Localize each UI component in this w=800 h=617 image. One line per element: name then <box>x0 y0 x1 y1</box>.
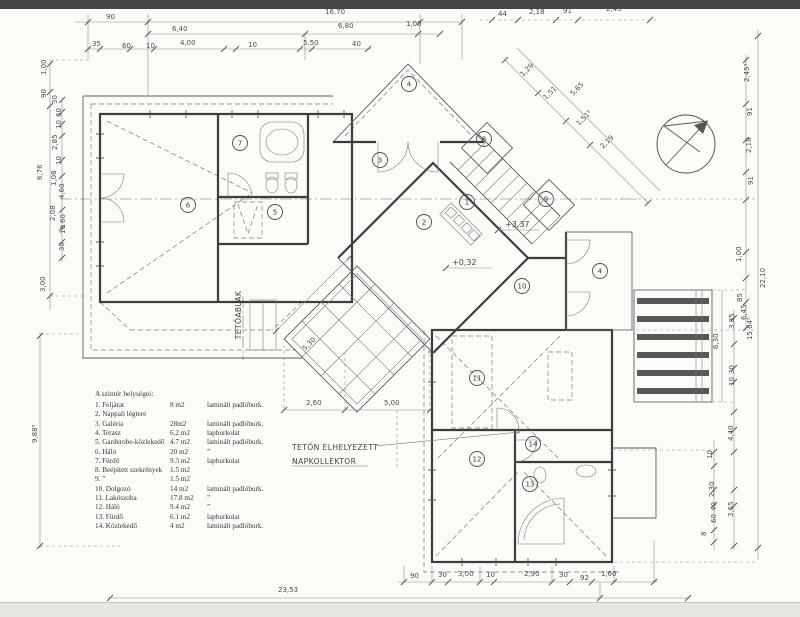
sink <box>576 465 596 477</box>
dim-label: 90 <box>410 572 419 580</box>
room-number-label: 9 <box>544 196 548 204</box>
legend-row: 2. Nappali légtere <box>95 410 146 418</box>
dim-label: 9,88⁵ <box>31 424 39 443</box>
legend-room-area: 6.2 m2 <box>170 429 190 437</box>
room-number-label: 7 <box>238 140 242 148</box>
legend-row: 5. Garderobe-közlekedő 4.7 m2 laminált p… <box>95 438 263 446</box>
dim-label: 90 <box>40 89 48 98</box>
dim-label: 5,65 <box>569 81 586 98</box>
legend: A szintér helységei: 1. Feljárat 8 m2 la… <box>95 389 263 530</box>
legend-room-floor: laminált padlóburk. <box>207 401 263 409</box>
dim-label: 2,85 <box>51 134 59 150</box>
dim-label: 40 <box>710 502 718 511</box>
dim-label: 2,19 <box>599 134 616 151</box>
dim-label: 10 <box>146 42 155 50</box>
floor-plan-drawing: 90 16,70 6,40 6,80 1,00 35 60 10 4,00 10… <box>0 0 800 616</box>
dim-label: 3,65 <box>727 501 735 517</box>
dim-label: 3,00 <box>458 570 474 578</box>
level-mark-upper: +3,37 <box>505 220 530 229</box>
right-wing-outer-wall <box>432 330 612 562</box>
dim-label: 2,18 <box>745 137 753 153</box>
legend-room-floor: lapburkolat <box>207 457 240 465</box>
room-number-label: 5 <box>273 209 277 217</box>
dim-label: 4,60 <box>58 183 66 199</box>
legend-room-name: 7. Fürdő <box>95 457 120 465</box>
legend-room-name: 8. Beépített szekrények <box>95 466 163 474</box>
dim-label: 2,45⁵ <box>743 63 751 82</box>
dim-label: 10 <box>728 377 736 386</box>
dim-label: 2,08 <box>49 205 57 221</box>
dim-label: 1,51⁵ <box>575 109 594 128</box>
level-mark-entry: +0,32 <box>452 258 477 267</box>
legend-room-area: 8 m2 <box>170 401 185 409</box>
room-circle-7: 7 <box>233 136 248 151</box>
dim-label: 22,10 <box>759 268 767 288</box>
scanned-floor-plan-page: 90 16,70 6,40 6,80 1,00 35 60 10 4,00 10… <box>0 0 800 616</box>
dim-label: 6,30 <box>712 333 720 349</box>
legend-room-area: 4.7 m2 <box>170 438 190 446</box>
dim-label: 1,00 <box>406 20 422 28</box>
dim-label: 2,90 <box>524 570 540 578</box>
dim-label: 30 <box>728 365 736 374</box>
legend-row: 8. Beépített szekrények 1.5 m2 <box>95 466 190 474</box>
room-number-label: 1 <box>465 199 469 207</box>
dim-label: 60 <box>122 42 131 50</box>
legend-room-area: 14 m2 <box>170 485 189 493</box>
legend-room-area: 1.5 m2 <box>170 475 190 483</box>
legend-row: 3. Galéria 28m2 laminált padlóburk. <box>95 420 263 428</box>
dim-label: 91 <box>747 176 755 185</box>
room-number-label: 11 <box>473 375 482 383</box>
room-number-label: 4 <box>407 81 412 89</box>
compass-icon <box>657 115 715 173</box>
legend-room-floor: lapburkolat <box>207 429 240 437</box>
legend-room-floor: laminált padlóburk. <box>207 485 263 493</box>
dim-label: 10 <box>59 225 67 234</box>
room-circle-12: 12 <box>470 452 485 467</box>
legend-row: 11. Lakószoba 17.8 m2 ” <box>95 494 210 502</box>
corner-bathtub <box>518 498 564 544</box>
dim-label: 91 <box>746 107 754 116</box>
room-number-label: 14 <box>529 441 538 449</box>
roof-outlines <box>60 70 640 572</box>
dim-label: 30 <box>559 571 568 579</box>
legend-room-name: 1. Feljárat <box>95 401 124 409</box>
room-circle-3: 3 <box>373 153 388 168</box>
legend-room-name: 5. Garderobe-közlekedő <box>95 438 165 446</box>
dim-label: 10 <box>248 41 257 49</box>
toilet <box>266 177 278 193</box>
dim-label: 6,40 <box>172 25 188 33</box>
legend-room-name: 13. Fürdő <box>95 513 123 521</box>
room-circle-6: 6 <box>181 198 196 213</box>
dim-label: 8 <box>700 532 708 536</box>
dim-label: 6,76 <box>36 164 44 180</box>
legend-room-name: 14. Közlekedő <box>95 522 137 530</box>
legend-row: 10. Dolgozó 14 m2 laminált padlóburk. <box>95 485 263 493</box>
solar-collector <box>634 290 712 402</box>
legend-row: 6. Háló 20 m2 ” <box>95 448 210 456</box>
room-circle-4b: 4 <box>593 264 608 279</box>
dim-label: 5,00 <box>384 399 400 407</box>
room-circle-2: 2 <box>417 215 432 230</box>
legend-room-name: 10. Dolgozó <box>95 485 131 493</box>
legend-room-floor: laminált padlóburk. <box>207 438 263 446</box>
room-circle-5: 5 <box>268 205 283 220</box>
room-number-label: 13 <box>526 481 535 489</box>
room-circle-11: 11 <box>470 371 485 386</box>
entry-steps <box>440 203 482 245</box>
dim-label: 2,45⁵ <box>606 5 625 13</box>
legend-room-name: 9. ” <box>95 475 105 483</box>
dim-label: 2,60 <box>306 399 322 407</box>
dim-label: 85 <box>736 293 744 302</box>
legend-room-floor: laminált padlóburk. <box>207 420 263 428</box>
toilet-2 <box>534 467 546 483</box>
room-circle-4a: 4 <box>402 77 417 92</box>
room-number-label: 3 <box>378 157 382 165</box>
legend-room-name: 4. Terasz <box>95 429 121 437</box>
dim-label: 2,18 <box>529 8 545 16</box>
bidet <box>285 177 297 193</box>
legend-row: 13. Fürdő 6.1 m2 lapburkolat <box>95 513 240 521</box>
dim-label: 23,53 <box>278 586 298 594</box>
legend-room-floor: ” <box>207 494 210 502</box>
wardrobe-room5 <box>234 202 262 238</box>
dim-label: 1,00 <box>40 59 48 75</box>
legend-row: 1. Feljárat 8 m2 laminált padlóburk. <box>95 401 263 409</box>
dim-label: 4,00 <box>180 39 196 47</box>
legend-room-name: 12. Háló <box>95 503 120 511</box>
dim-label: 10 <box>55 120 63 129</box>
dim-label: 10 <box>706 450 714 459</box>
dim-label: 2,30 <box>708 481 716 497</box>
dim-label: 3,00 <box>39 276 47 292</box>
central-diamond-wall <box>338 163 528 353</box>
dim-label: 4,40 <box>727 425 735 441</box>
legend-room-area: 28m2 <box>170 420 187 428</box>
room-number-label: 4 <box>598 268 603 276</box>
dim-label: 10 <box>486 571 495 579</box>
legend-room-name: 3. Galéria <box>95 420 124 428</box>
dim-label: 60 <box>710 514 718 523</box>
dim-label: 5,50 <box>303 39 319 47</box>
legend-room-area: 17.8 m2 <box>170 494 194 502</box>
dim-label: 1,00 <box>735 246 743 262</box>
legend-row: 14. Közlekedő 4 m2 laminált padlóburk. <box>95 522 263 530</box>
legend-room-area: 4 m2 <box>170 522 185 530</box>
legend-title: A szintér helységei: <box>95 389 153 398</box>
legend-room-name: 11. Lakószoba <box>95 494 137 502</box>
legend-room-area: 1.5 m2 <box>170 466 190 474</box>
legend-row: 9. ” 1.5 m2 <box>95 475 190 483</box>
dim-label: 10 <box>55 156 63 165</box>
dim-label: 16,70 <box>325 8 345 16</box>
room-number-label: 2 <box>422 219 426 227</box>
legend-row: 12. Háló 9.4 m2 ” <box>95 503 210 511</box>
gable-roof-line <box>333 64 484 142</box>
legend-room-area: 9.4 m2 <box>170 503 190 511</box>
legend-room-area: 20 m2 <box>170 448 189 456</box>
collector-label-line1: TETŐN ELHELYEZETT <box>291 443 378 452</box>
dim-label: 1,60 <box>601 570 617 578</box>
room-number-label: 10 <box>518 283 527 291</box>
dim-label: 30 <box>51 95 59 104</box>
dim-label: 35 <box>92 40 101 48</box>
legend-room-name: 2. Nappali légtere <box>95 410 146 418</box>
room-number-label: 12 <box>473 456 482 464</box>
fixtures <box>234 122 596 544</box>
room-circle-10: 10 <box>515 279 530 294</box>
room-circle-14: 14 <box>526 437 541 452</box>
room-number-label: 8 <box>482 136 486 144</box>
dim-label: 15,64⁵ <box>746 317 754 340</box>
legend-room-floor: laminált padlóburk. <box>207 522 263 530</box>
dim-label: 44 <box>498 10 507 18</box>
dim-label: 60 <box>55 108 63 117</box>
legend-room-area: 9.3 m2 <box>170 457 190 465</box>
room-number-label: 6 <box>186 202 191 210</box>
legend-room-floor: ” <box>207 448 210 456</box>
dim-label: 30 <box>438 571 447 579</box>
legend-room-name: 6. Háló <box>95 448 117 456</box>
legend-row: 4. Terasz 6.2 m2 lapburkolat <box>95 429 240 437</box>
dim-label: 91 <box>563 7 572 15</box>
collector-label-line2: NAPKOLLEKTOR <box>292 457 357 466</box>
dim-label: 6,80 <box>338 22 354 30</box>
legend-room-area: 6.1 m2 <box>170 513 190 521</box>
dim-label: 3,85 <box>728 313 736 329</box>
dim-label: 40 <box>352 40 361 48</box>
left-wing-outer-wall <box>100 114 352 302</box>
skylight-label: TETŐABLAK <box>234 290 243 340</box>
legend-room-floor: ” <box>207 503 210 511</box>
terrace-outline <box>566 232 632 330</box>
bathtub <box>260 122 304 162</box>
wardrobe-room14 <box>548 352 572 400</box>
dim-label: 90 <box>106 13 115 21</box>
dim-label: 30 <box>58 242 66 251</box>
legend-row: 7. Fürdő 9.3 m2 lapburkolat <box>95 457 240 465</box>
dim-label: 60 <box>59 214 67 223</box>
skylight-grid <box>250 266 430 412</box>
legend-room-floor: lapburkolat <box>207 513 240 521</box>
dim-label: 92 <box>580 574 589 582</box>
dim-label: 1,08 <box>50 170 58 186</box>
